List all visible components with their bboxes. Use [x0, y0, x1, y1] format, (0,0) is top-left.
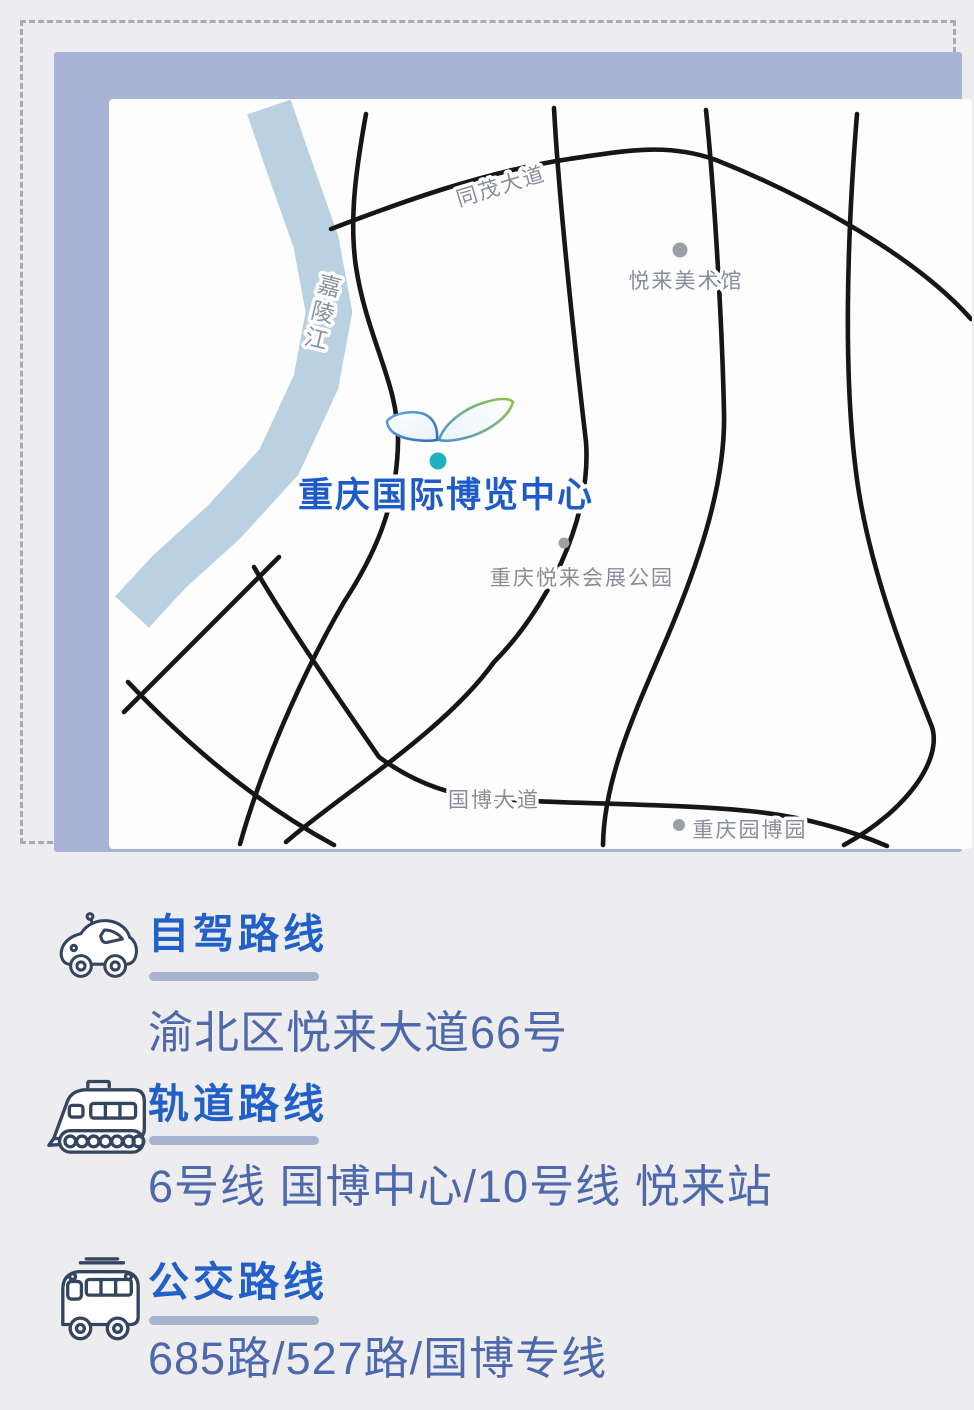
road-vertical-4	[844, 114, 934, 845]
map-card: 嘉陵江 同茂大道 国博大道 悦来美术馆 重庆悦来会展公园 重庆园博园	[20, 20, 956, 844]
road-tongmao-avenue	[331, 150, 971, 319]
venue-marker-dot	[430, 453, 447, 470]
poi-label: 悦来美术馆	[629, 270, 744, 293]
road-diagonal-southwest	[128, 682, 334, 845]
rail-route-detail: 6号线 国博中心/10号线 悦来站	[148, 1162, 773, 1212]
poi-exhibition-park: 重庆悦来会展公园	[490, 538, 674, 591]
road-vertical-2	[603, 110, 724, 845]
bus-route-detail: 685路/527路/国博专线	[148, 1334, 607, 1384]
rail-route-title: 轨道路线	[148, 1084, 328, 1125]
venue-label: 重庆国际博览中心	[298, 476, 594, 515]
rail-title-underline	[149, 1136, 319, 1145]
poi-label: 重庆悦来会展公园	[490, 567, 674, 590]
guobo-avenue-label: 国博大道	[448, 789, 540, 812]
driving-route-title: 自驾路线	[148, 914, 328, 955]
bus-title-underline	[149, 1316, 319, 1325]
map-frame: 嘉陵江 同茂大道 国博大道 悦来美术馆 重庆悦来会展公园 重庆园博园	[54, 52, 962, 852]
car-icon	[54, 906, 144, 990]
poi-dot	[673, 819, 685, 831]
tongmao-avenue-label: 同茂大道	[454, 162, 549, 211]
logo-leaf-right	[439, 399, 513, 441]
poi-label: 重庆园博园	[693, 819, 808, 842]
bus-icon	[50, 1256, 150, 1346]
road-guobo-avenue	[254, 567, 887, 846]
jialing-river	[132, 107, 329, 612]
poi-art-museum: 悦来美术馆	[629, 243, 744, 294]
driving-title-underline	[149, 972, 319, 981]
driving-route-detail: 渝北区悦来大道66号	[148, 1008, 568, 1058]
poi-dot	[559, 538, 570, 549]
poi-garden-expo: 重庆园博园	[673, 819, 808, 842]
logo-leaf-left	[387, 412, 437, 440]
map-svg: 嘉陵江 同茂大道 国博大道 悦来美术馆 重庆悦来会展公园 重庆园博园	[109, 99, 972, 849]
poi-dot	[673, 243, 688, 258]
schematic-map: 嘉陵江 同茂大道 国博大道 悦来美术馆 重庆悦来会展公园 重庆园博园	[109, 99, 972, 849]
expo-logo	[387, 399, 513, 441]
bus-route-title: 公交路线	[148, 1262, 328, 1303]
train-icon	[44, 1076, 156, 1164]
